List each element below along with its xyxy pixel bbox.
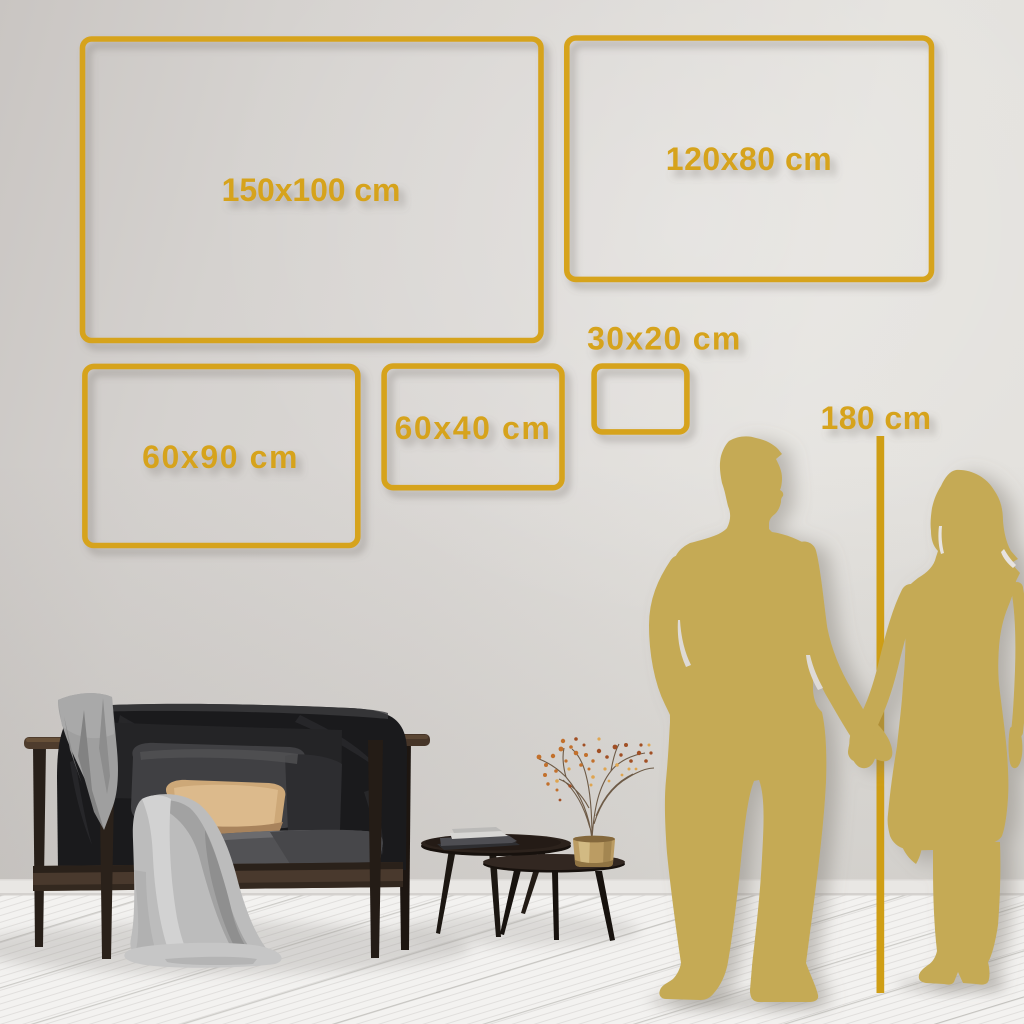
svg-text:180 cm: 180 cm [821, 400, 932, 436]
svg-text:60x40 cm: 60x40 cm [395, 410, 552, 446]
svg-text:30x20 cm: 30x20 cm [587, 321, 742, 357]
svg-text:60x90 cm: 60x90 cm [142, 439, 299, 475]
svg-text:150x100 cm: 150x100 cm [222, 172, 401, 208]
svg-text:120x80 cm: 120x80 cm [666, 141, 832, 177]
